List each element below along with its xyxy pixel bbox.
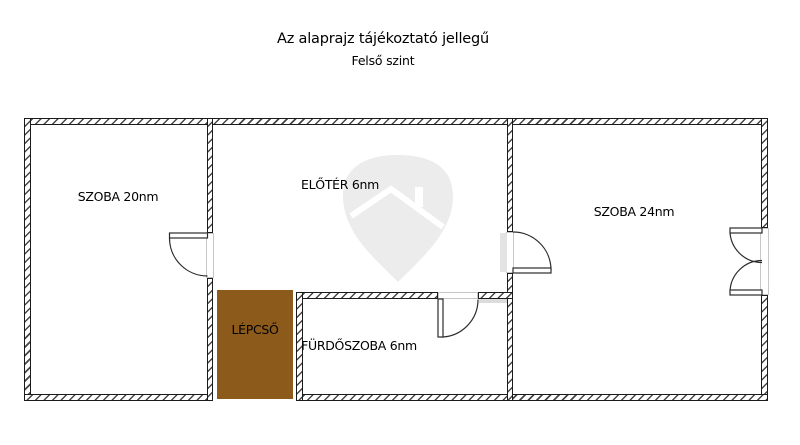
watermark-roof-icon — [351, 189, 443, 227]
wall-divider2-upper — [507, 118, 513, 232]
door-opening-balcony — [760, 228, 769, 295]
watermark-pin-shape — [343, 155, 453, 282]
floorplan-canvas: Az alaprajz tájékoztató jellegű Felső sz… — [0, 0, 800, 445]
stairs-area — [217, 290, 293, 399]
door-szoba24 — [513, 232, 551, 273]
room-label-eloter: ELŐTÉR 6nm — [301, 177, 379, 192]
plan-disclaimer-title: Az alaprajz tájékoztató jellegű — [277, 31, 489, 47]
room-label-szoba20: SZOBA 20nm — [78, 189, 158, 204]
door-opening-furdoszoba — [438, 292, 478, 299]
wall-outer-right-lower — [761, 295, 768, 401]
wall-outer-top — [24, 118, 768, 125]
room-label-furdoszoba: FÜRDŐSZOBA 6nm — [301, 338, 417, 353]
wall-shadow — [479, 299, 507, 303]
wall-bathroom-top-right — [478, 292, 513, 299]
watermark-chimney-icon — [415, 187, 423, 207]
wall-divider1-lower — [207, 278, 213, 401]
wall-outer-left — [24, 118, 31, 401]
door-opening-szoba20 — [206, 233, 214, 278]
double-door-szoba24 — [730, 228, 762, 295]
room-label-szoba24: SZOBA 24nm — [594, 204, 674, 219]
wall-outer-bottom-left — [24, 394, 213, 401]
door-szoba20 — [170, 233, 208, 276]
room-label-lepcso: LÉPCSŐ — [231, 322, 278, 337]
door-opening-szoba24 — [506, 232, 514, 273]
wall-bathroom-top-left — [296, 292, 438, 299]
plan-level-subtitle: Felső szint — [352, 53, 415, 68]
wall-divider1-upper — [207, 118, 213, 233]
wall-outer-bottom-right — [296, 394, 768, 401]
wall-outer-right-upper — [761, 118, 768, 228]
door-furdoszoba — [438, 299, 478, 337]
